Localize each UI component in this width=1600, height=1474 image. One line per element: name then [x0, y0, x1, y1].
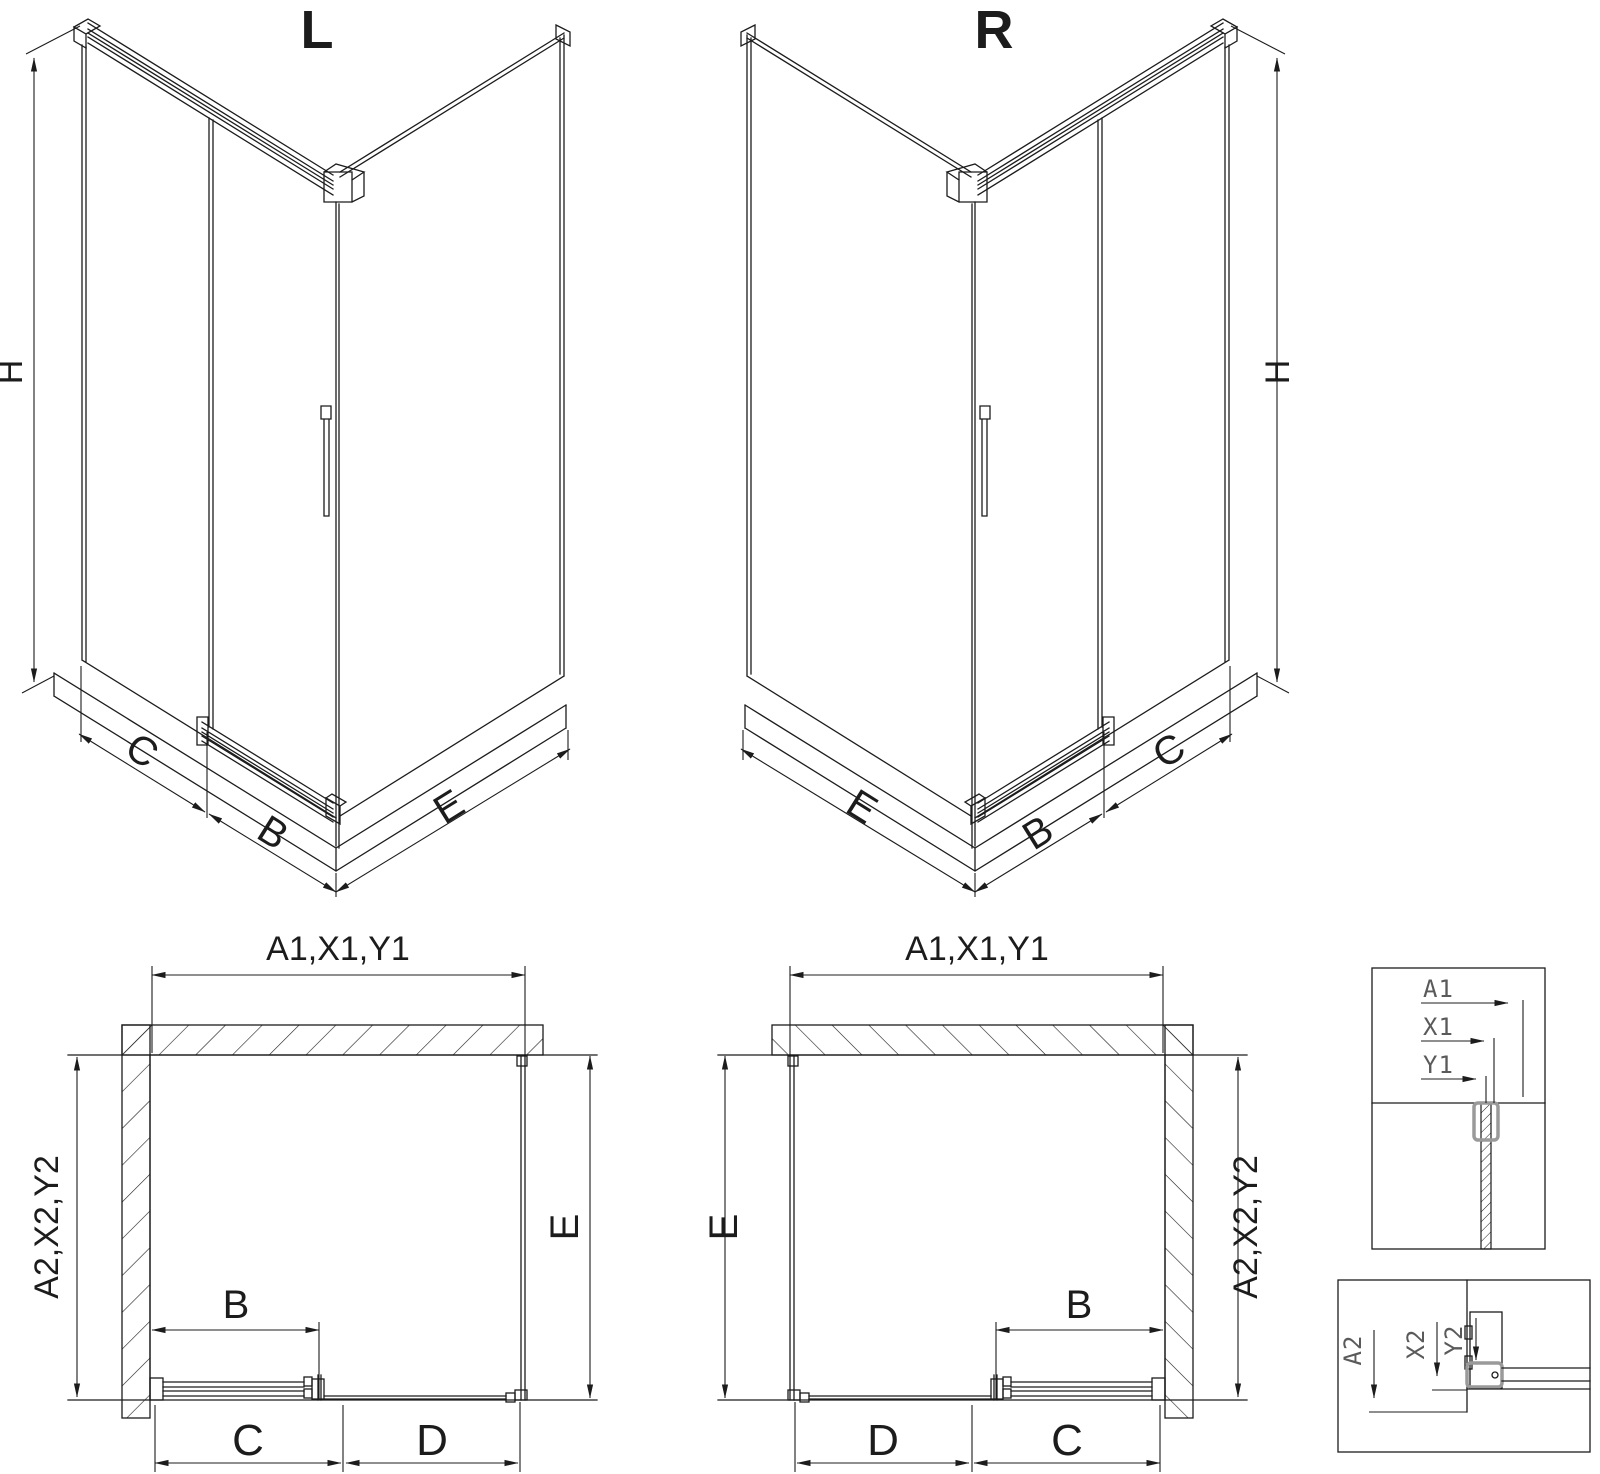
plan-r-dim-d: D	[867, 1416, 899, 1465]
plan-r-dim-door: B	[1066, 1283, 1093, 1327]
dim-label-e-r: E	[839, 781, 885, 832]
detail-label-y1: Y1	[1423, 1051, 1454, 1079]
dim-label-c-l: C	[118, 725, 166, 778]
plan-right-geometry	[718, 966, 1247, 1472]
iso-right-geometry	[741, 19, 1289, 897]
plan-l-dim-top: A1,X1,Y1	[266, 930, 410, 968]
dim-label-e-l: E	[426, 781, 472, 832]
detail-label-a1: A1	[1423, 975, 1454, 1003]
plan-r-dim-left: E	[702, 1214, 746, 1241]
plan-left-labels: A1,X1,Y1 A2,X2,Y2 E B C D	[28, 930, 587, 1465]
drawing-canvas: L H C B E R H C B E	[0, 0, 1600, 1474]
plan-r-dim-right: A2,X2,Y2	[1227, 1155, 1265, 1299]
detail-label-a2: A2	[1339, 1335, 1367, 1366]
screw-detail	[1492, 1372, 1498, 1378]
dim-label-height-l: H	[0, 360, 30, 385]
detail-label-x1: X1	[1423, 1013, 1454, 1041]
plan-r-dim-top: A1,X1,Y1	[905, 930, 1049, 968]
plan-l-dim-d: D	[416, 1416, 448, 1465]
wall-top-hatch	[122, 1025, 543, 1055]
plan-l-dim-right: E	[543, 1214, 587, 1241]
technical-drawing-sheet: L H C B E R H C B E	[0, 0, 1600, 1474]
dim-label-height-r: H	[1259, 360, 1297, 385]
iso-left-title: L	[301, 0, 334, 60]
glass-section-hatch	[1481, 1103, 1491, 1249]
dim-label-b-l: B	[250, 807, 296, 858]
wall-side-hatch	[122, 1025, 150, 1418]
plan-r-dim-c: C	[1051, 1416, 1083, 1465]
iso-left-geometry	[22, 19, 570, 897]
iso-right-title: R	[975, 0, 1014, 60]
detail-label-y2: Y2	[1440, 1325, 1468, 1356]
plan-l-dim-door: B	[223, 1283, 250, 1327]
detail-label-x2: X2	[1402, 1329, 1430, 1360]
plan-l-dim-c: C	[232, 1416, 264, 1465]
plan-left-geometry	[68, 966, 597, 1472]
dim-label-c-r: C	[1145, 725, 1193, 778]
detail-a2-box: A2 X2 Y2	[1338, 1280, 1590, 1452]
plan-l-dim-left: A2,X2,Y2	[28, 1155, 66, 1299]
dim-label-b-r: B	[1015, 807, 1061, 858]
detail-a1-box: A1 X1 Y1	[1372, 968, 1545, 1249]
